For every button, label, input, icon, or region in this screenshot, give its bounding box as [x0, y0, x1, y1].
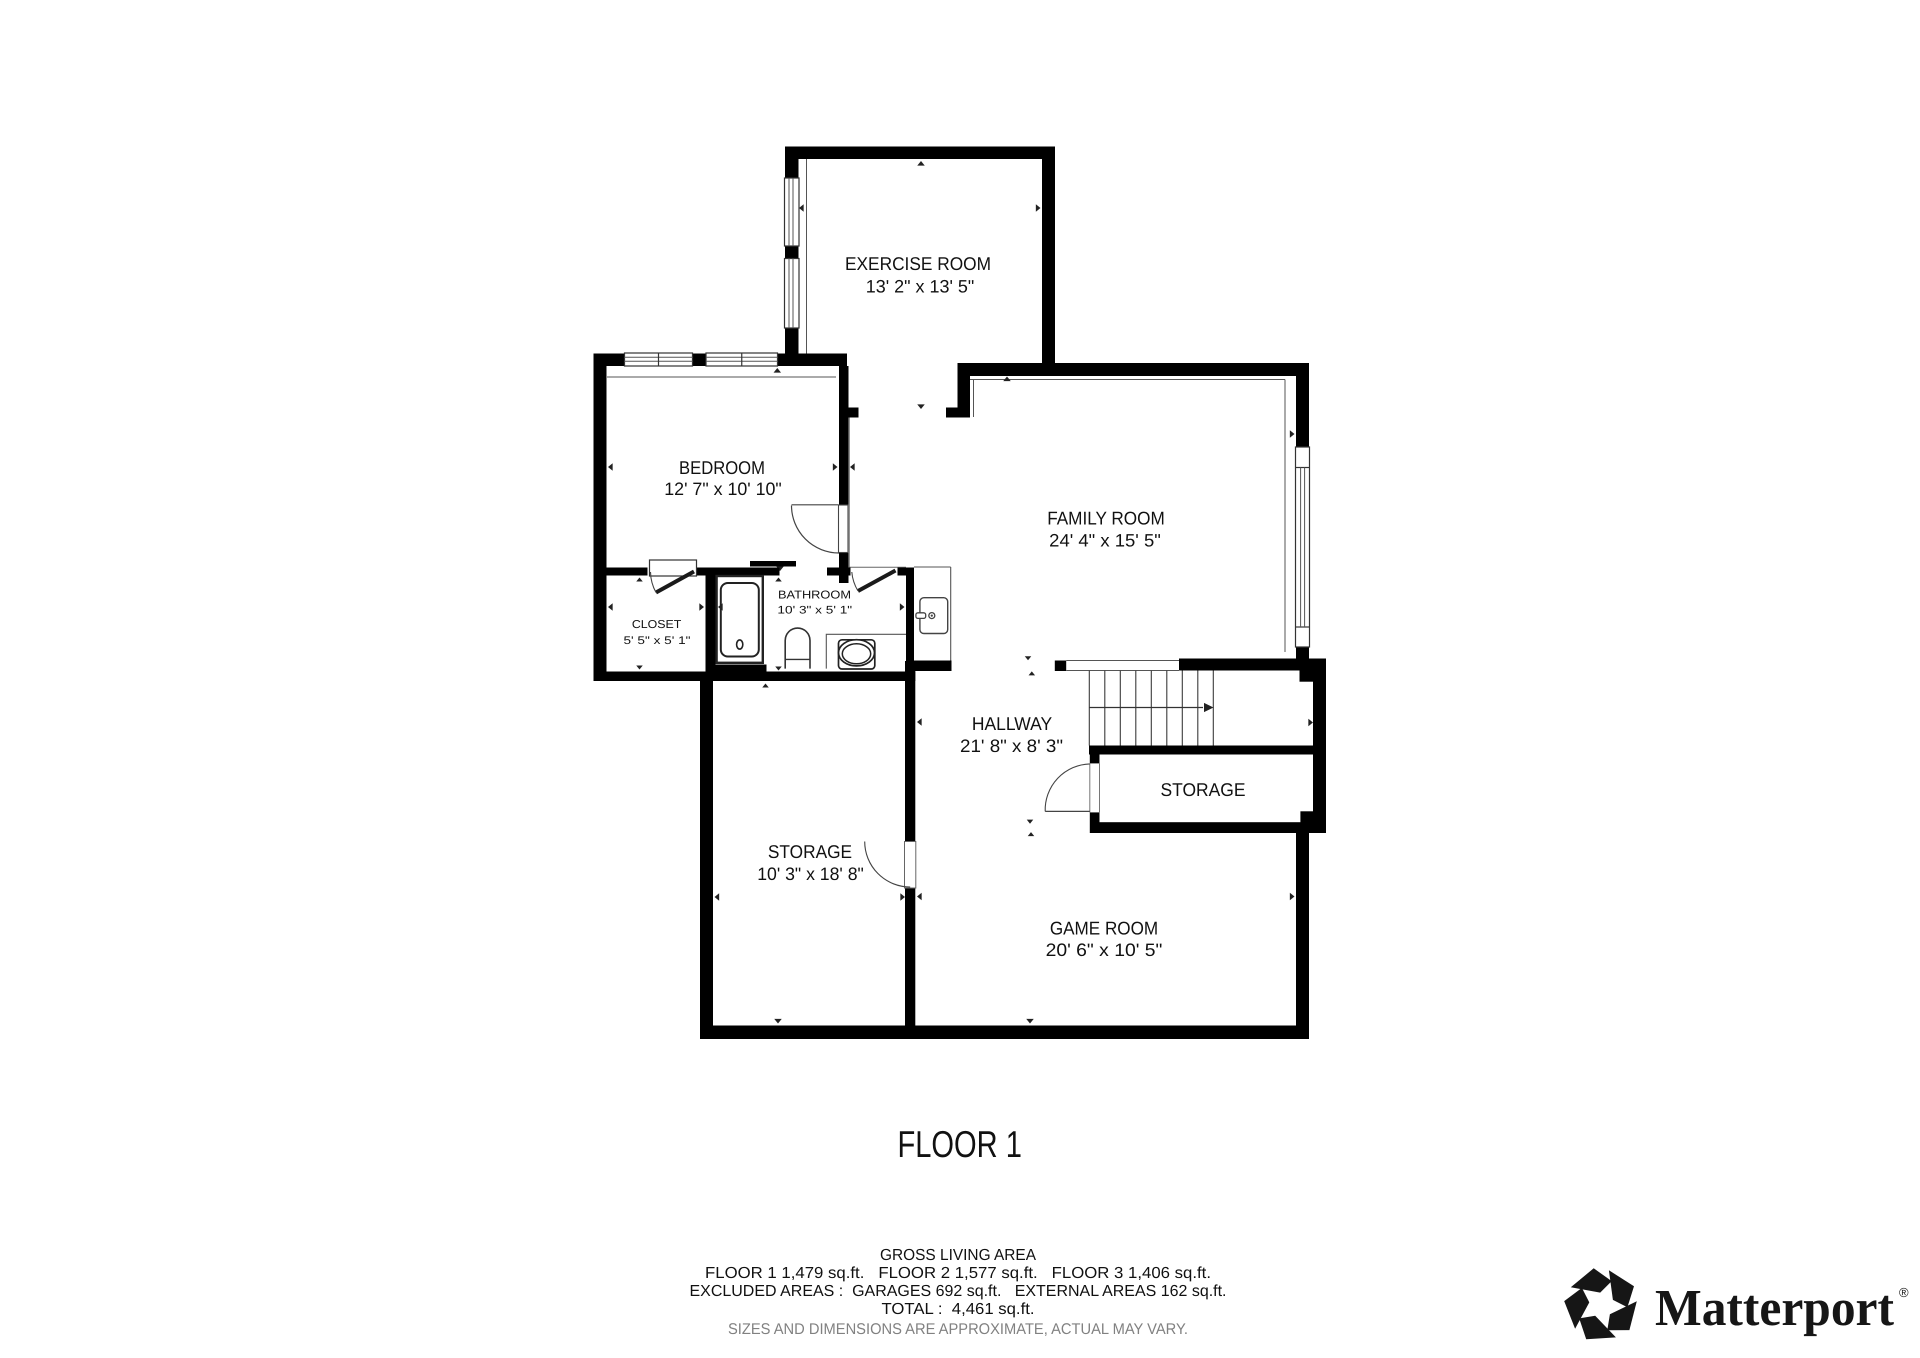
- svg-text:FLOOR 1 1,479 sq.ft. FLOOR 2: FLOOR 1 1,479 sq.ft. FLOOR 2 1,577 sq.ft…: [705, 1265, 1211, 1282]
- svg-text:EXERCISE ROOM: EXERCISE ROOM: [845, 253, 991, 274]
- svg-text:21' 8" x 8' 3": 21' 8" x 8' 3": [960, 736, 1063, 756]
- svg-text:GROSS LIVING AREA: GROSS LIVING AREA: [880, 1247, 1036, 1264]
- svg-text:STORAGE: STORAGE: [1161, 779, 1246, 800]
- svg-text:CLOSET: CLOSET: [632, 619, 682, 631]
- svg-text:GAME ROOM: GAME ROOM: [1050, 918, 1158, 939]
- svg-text:STORAGE: STORAGE: [768, 841, 852, 862]
- svg-text:Matterport: Matterport: [1655, 1280, 1895, 1337]
- svg-text:HALLWAY: HALLWAY: [972, 713, 1052, 734]
- svg-text:12' 7" x 10' 10": 12' 7" x 10' 10": [664, 479, 782, 499]
- svg-text:BATHROOM: BATHROOM: [778, 590, 851, 602]
- svg-text:BEDROOM: BEDROOM: [679, 457, 765, 478]
- svg-text:10' 3" x 18' 8": 10' 3" x 18' 8": [757, 864, 864, 884]
- svg-text:10' 3" x 5' 1": 10' 3" x 5' 1": [777, 605, 852, 617]
- svg-text:®: ®: [1899, 1285, 1909, 1300]
- svg-text:EXCLUDED AREAS : GARAGES 692: EXCLUDED AREAS : GARAGES 692 sq.ft. EXTE…: [690, 1283, 1227, 1300]
- svg-text:SIZES AND DIMENSIONS ARE APPRO: SIZES AND DIMENSIONS ARE APPROXIMATE, AC…: [728, 1321, 1188, 1338]
- svg-text:FLOOR 1: FLOOR 1: [898, 1123, 1022, 1165]
- svg-text:TOTAL : 4,461 sq.ft.: TOTAL : 4,461 sq.ft.: [882, 1301, 1035, 1318]
- svg-text:13' 2" x 13' 5": 13' 2" x 13' 5": [866, 277, 975, 297]
- svg-text:FAMILY ROOM: FAMILY ROOM: [1047, 508, 1165, 529]
- svg-text:24' 4" x 15' 5": 24' 4" x 15' 5": [1049, 531, 1161, 551]
- svg-text:5' 5" x 5' 1": 5' 5" x 5' 1": [624, 635, 691, 647]
- svg-text:20' 6" x 10' 5": 20' 6" x 10' 5": [1046, 940, 1163, 960]
